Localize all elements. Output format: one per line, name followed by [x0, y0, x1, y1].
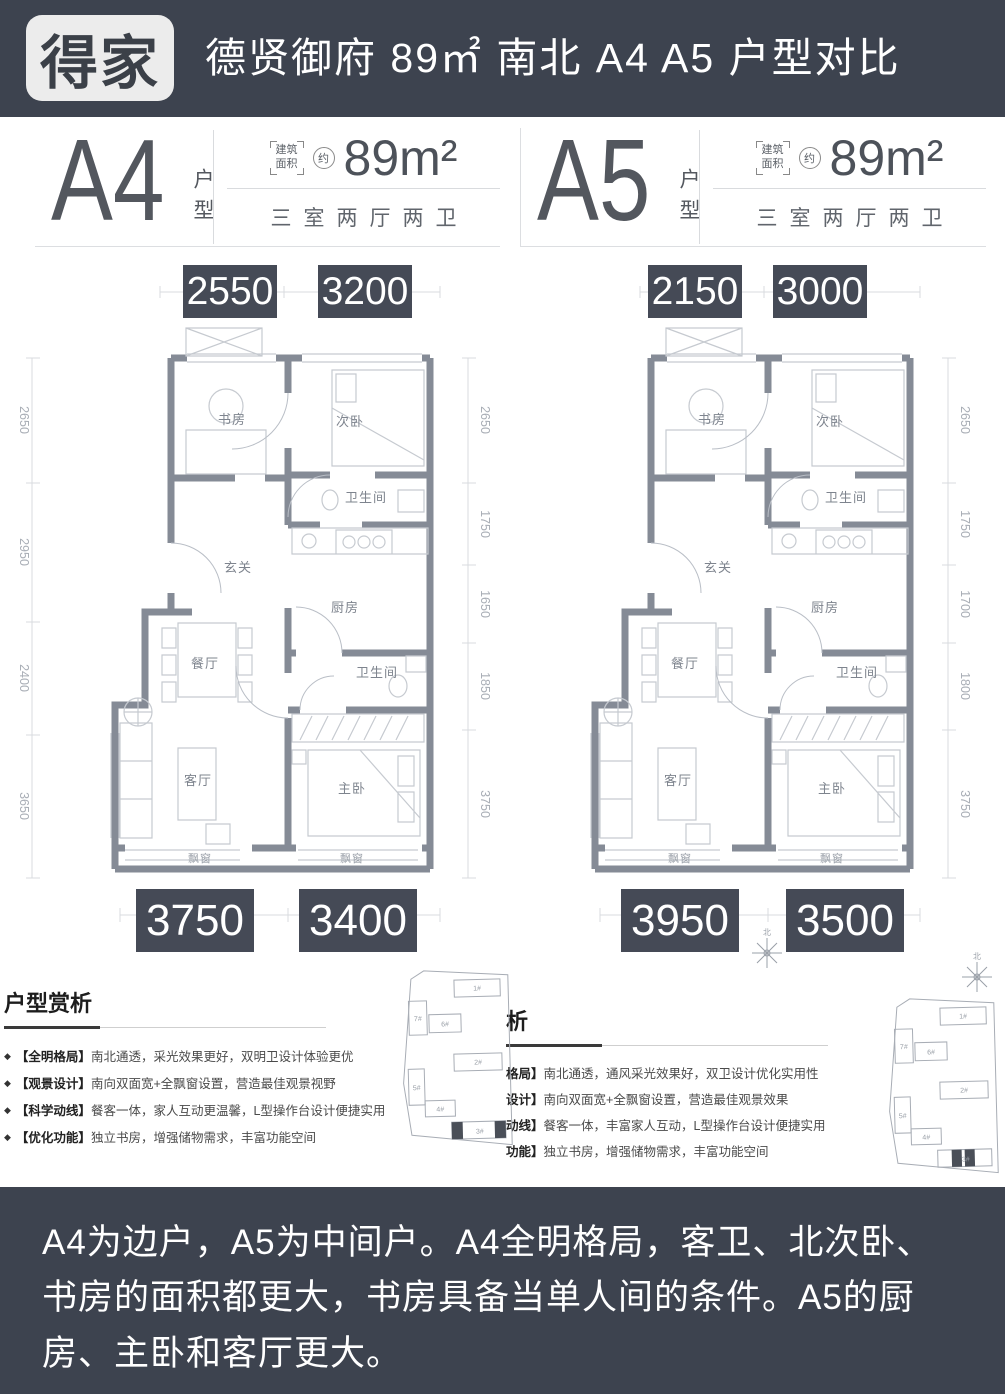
- plan-name-a5: A5: [537, 114, 651, 247]
- dim-label: 2650: [958, 406, 972, 434]
- diamond-icon: ◆: [4, 1132, 11, 1142]
- plan-area-block: 建筑 面积 约 89m² 三室两厅两卫: [227, 128, 500, 246]
- room-label-living: 客厅: [664, 773, 692, 788]
- building-label: 7#: [414, 1016, 422, 1023]
- dim-box: 3950: [621, 889, 739, 952]
- analysis-title: 户型赏析: [4, 986, 402, 1018]
- room-label-master: 主卧: [818, 781, 846, 796]
- area-bracket: 建筑 面积: [756, 141, 790, 175]
- svg-text:北: 北: [973, 952, 981, 961]
- area-value: 89m²: [344, 129, 458, 187]
- dim-box: 3200: [318, 265, 412, 318]
- building-label: 6#: [441, 1021, 449, 1028]
- analysis-bullets: 格局】南北通透，通风采光效果好，双卫设计优化实用性 设计】南向双面宽+全飘窗设置…: [506, 1061, 906, 1165]
- dim-label: 3750: [958, 790, 972, 818]
- room-label-kitchen: 厨房: [811, 600, 839, 615]
- room-label-bath1: 卫生间: [825, 490, 867, 505]
- brand-logo: 得家: [26, 15, 174, 101]
- room-label-dining: 餐厅: [191, 656, 219, 671]
- analysis-bullets: ◆【全明格局】南北通透，采光效果更好，双明卫设计体验更优 ◆【观景设计】南向双面…: [4, 1043, 402, 1151]
- room-label-bedroom2: 次卧: [336, 414, 364, 429]
- dim-label: 2650: [17, 406, 31, 434]
- siteplan-thumbnail-a5: 1# 7# 6# 2# 5# 4# 3#: [881, 988, 1005, 1187]
- building-label: 5#: [413, 1085, 421, 1092]
- dim-box: 3400: [299, 889, 417, 952]
- layout-text: 三室两厅两卫: [745, 202, 955, 232]
- siteplan-thumbnail-a4: 1# 7# 6# 2# 5# 4# 3#: [395, 960, 522, 1159]
- room-label-bedroom2: 次卧: [816, 414, 844, 429]
- room-label-master: 主卧: [338, 781, 366, 796]
- plan-header-a5: A5 户型 建筑 面积 约 89m² 三室两厅两卫: [520, 128, 986, 247]
- building-label: 5#: [899, 1113, 907, 1120]
- poster: 得家 德贤御府 89㎡ 南北 A4 A5 户型对比 A4 户型 建筑 面积 约 …: [0, 0, 1005, 1394]
- building-label: 4#: [922, 1134, 930, 1141]
- summary-band: A4为边户，A5为中间户。A4全明格局，客卫、北次卧、书房的面积都更大，书房具备…: [0, 1187, 1005, 1394]
- room-label-bay: 飘窗: [188, 851, 212, 865]
- divider: [699, 130, 700, 244]
- floorplan-a5: 2650 1750 1700 1800 3750 书房 次卧 卫生间 玄关 厨房…: [480, 278, 985, 928]
- brand-logo-text: 得家: [40, 16, 160, 100]
- area-value: 89m²: [830, 129, 944, 187]
- bullet-item: 格局】南北通透，通风采光效果好，双卫设计优化实用性: [506, 1061, 906, 1087]
- room-label-kitchen: 厨房: [331, 600, 359, 615]
- dim-label: 2950: [17, 538, 31, 566]
- bullet-item: ◆【观景设计】南向双面宽+全飘窗设置，营造最佳观景视野: [4, 1070, 402, 1097]
- dim-label: 1800: [958, 672, 972, 700]
- plan-area-block: 建筑 面积 约 89m² 三室两厅两卫: [713, 128, 986, 246]
- header-bar: 得家 德贤御府 89㎡ 南北 A4 A5 户型对比: [0, 0, 1005, 117]
- building-label: 1#: [959, 1013, 967, 1020]
- divider: [506, 1044, 828, 1047]
- room-label-bay: 飘窗: [820, 851, 844, 865]
- diamond-icon: ◆: [4, 1105, 11, 1115]
- approx-badge: 约: [799, 147, 821, 169]
- area-bracket: 建筑 面积: [270, 141, 304, 175]
- plan-header-a4: A4 户型 建筑 面积 约 89m² 三室两厅两卫: [35, 128, 500, 247]
- approx-badge: 约: [313, 147, 335, 169]
- bullet-item: 设计】南向双面宽+全飘窗设置，营造最佳观景效果: [506, 1087, 906, 1113]
- bullet-item: 动线】餐客一体，丰富家人互动，L型操作台设计便捷实用: [506, 1113, 906, 1139]
- analysis-a4: 户型赏析 ◆【全明格局】南北通透，采光效果更好，双明卫设计体验更优 ◆【观景设计…: [4, 986, 402, 1151]
- bullet-item: ◆【优化功能】独立书房，增强储物需求，丰富功能空间: [4, 1124, 402, 1151]
- dim-label: 3650: [17, 792, 31, 820]
- building-label: 7#: [900, 1044, 908, 1051]
- divider: [213, 130, 214, 244]
- diamond-icon: ◆: [4, 1078, 11, 1088]
- building-label: 4#: [436, 1106, 444, 1113]
- compass-icon: 北: [750, 926, 784, 972]
- divider: [4, 1026, 326, 1029]
- dim-box: 3000: [773, 265, 867, 318]
- analysis-title: 析: [506, 1004, 906, 1036]
- room-label-bath2: 卫生间: [836, 665, 878, 680]
- analysis-a5: 析 格局】南北通透，通风采光效果好，双卫设计优化实用性 设计】南向双面宽+全飘窗…: [506, 1004, 906, 1165]
- room-label-dining: 餐厅: [671, 656, 699, 671]
- floorplan-a4: 2650 2950 2400 3650 2650 1750 1650 1850 …: [0, 278, 505, 928]
- dim-label: 2400: [17, 664, 31, 692]
- dim-label: 1750: [958, 510, 972, 538]
- room-label-bay: 飘窗: [340, 851, 364, 865]
- room-label-study: 书房: [218, 412, 246, 427]
- dim-box: 2150: [648, 265, 742, 318]
- room-label-bath2: 卫生间: [356, 665, 398, 680]
- bullet-item: 功能】独立书房，增强储物需求，丰富功能空间: [506, 1139, 906, 1165]
- dim-box: 3750: [136, 889, 254, 952]
- room-label-study: 书房: [698, 412, 726, 427]
- svg-text:北: 北: [763, 928, 771, 937]
- dim-box: 3500: [786, 889, 904, 952]
- page-title: 德贤御府 89㎡ 南北 A4 A5 户型对比: [205, 0, 901, 117]
- building-label: 1#: [473, 985, 481, 992]
- plan-name-a4: A4: [51, 114, 165, 247]
- layout-text: 三室两厅两卫: [259, 202, 469, 232]
- building-label: 3#: [476, 1128, 484, 1135]
- bullet-item: ◆【科学动线】餐客一体，家人互动更温馨，L型操作台设计便捷实用: [4, 1097, 402, 1124]
- bullet-item: ◆【全明格局】南北通透，采光效果更好，双明卫设计体验更优: [4, 1043, 402, 1070]
- building-label: 2#: [474, 1059, 482, 1066]
- room-label-foyer: 玄关: [224, 560, 252, 575]
- room-label-bath1: 卫生间: [345, 490, 387, 505]
- dim-label: 1700: [958, 590, 972, 618]
- building-label: 6#: [927, 1049, 935, 1056]
- room-label-bay: 飘窗: [668, 851, 692, 865]
- dim-box: 2550: [183, 265, 277, 318]
- room-label-living: 客厅: [184, 773, 212, 788]
- room-label-foyer: 玄关: [704, 560, 732, 575]
- building-label: 3#: [962, 1156, 970, 1163]
- diamond-icon: ◆: [4, 1051, 11, 1061]
- compass-icon: 北: [960, 950, 994, 996]
- summary-text: A4为边户，A5为中间户。A4全明格局，客卫、北次卧、书房的面积都更大，书房具备…: [0, 1187, 1005, 1381]
- building-label: 2#: [960, 1087, 968, 1094]
